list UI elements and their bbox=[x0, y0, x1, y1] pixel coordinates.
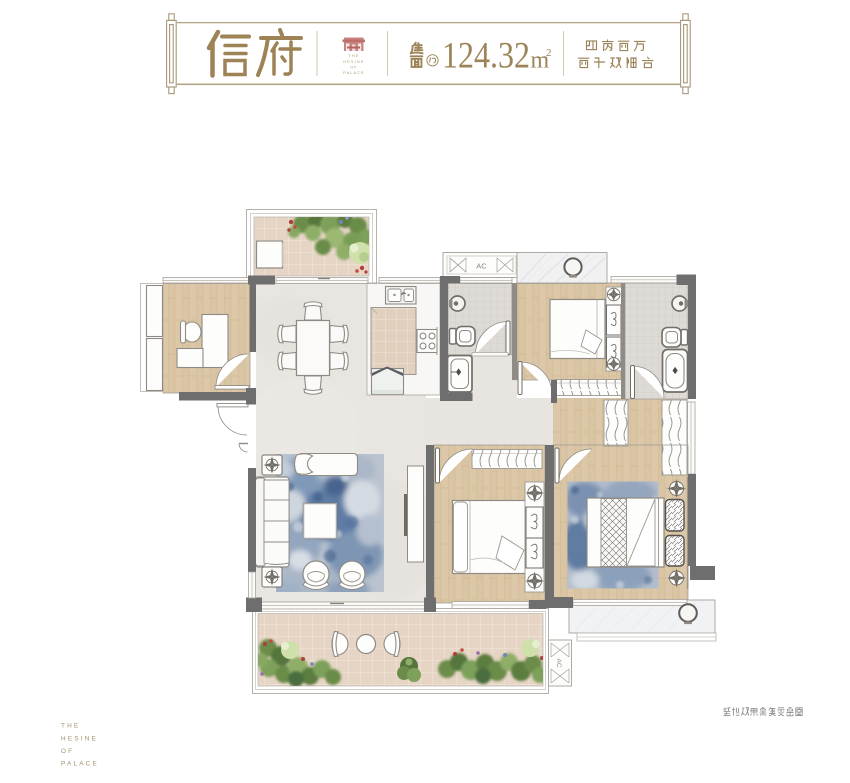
svg-text:AC: AC bbox=[476, 262, 487, 271]
svg-text:PALACE: PALACE bbox=[343, 71, 365, 75]
svg-text:PALACE: PALACE bbox=[61, 761, 99, 768]
svg-text:AC: AC bbox=[555, 658, 562, 667]
svg-text:OF: OF bbox=[350, 65, 358, 69]
svg-text:124.32: 124.32 bbox=[442, 35, 530, 76]
svg-text:HESINE: HESINE bbox=[61, 736, 98, 743]
svg-text:2: 2 bbox=[546, 47, 552, 59]
svg-text:HESINE: HESINE bbox=[343, 60, 364, 64]
svg-text:THE: THE bbox=[61, 723, 80, 730]
svg-text:THE: THE bbox=[348, 54, 359, 58]
svg-text:OF: OF bbox=[61, 748, 74, 755]
